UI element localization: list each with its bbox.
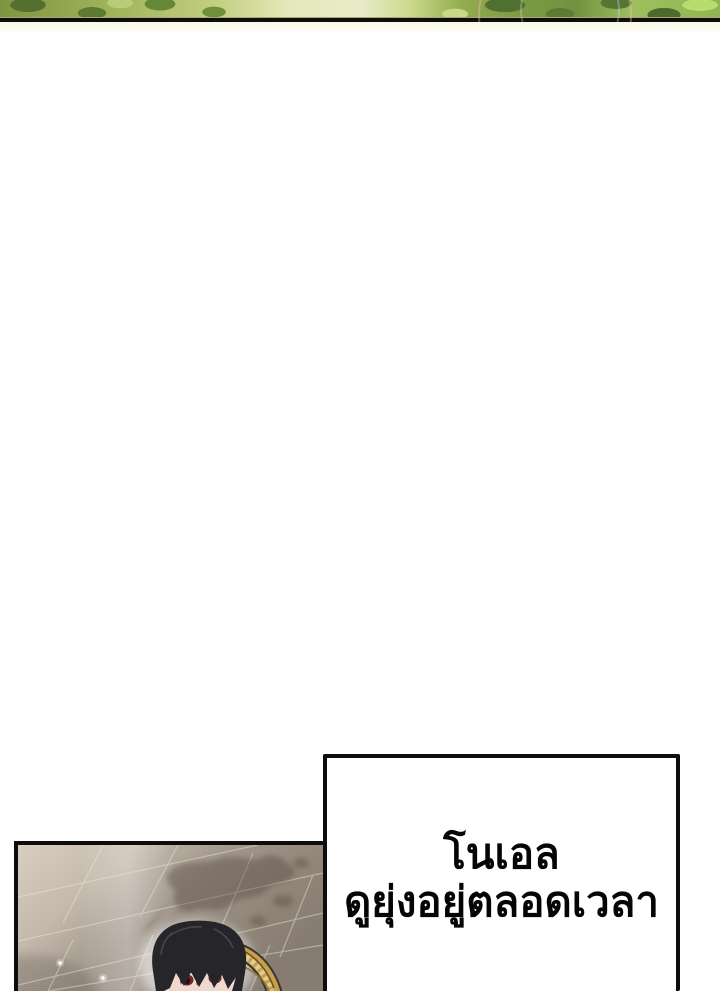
banner-fade (0, 22, 720, 34)
foliage-banner (0, 0, 720, 22)
panel-artwork (18, 845, 323, 991)
speech-bubble: โนเอล ดูยุ่งอยู่ตลอดเวลา (323, 754, 680, 991)
speech-line-2: ดูยุ่งอยู่ตลอดเวลา (327, 878, 676, 926)
comic-panel (14, 841, 327, 991)
foliage-artwork (0, 0, 720, 17)
character-head (152, 921, 246, 991)
speech-line-1: โนเอล (327, 830, 676, 878)
foliage-highlight-line (0, 17, 720, 18)
speech-text: โนเอล ดูยุ่งอยู่ตลอดเวลา (327, 758, 676, 926)
character-hair (152, 921, 246, 991)
